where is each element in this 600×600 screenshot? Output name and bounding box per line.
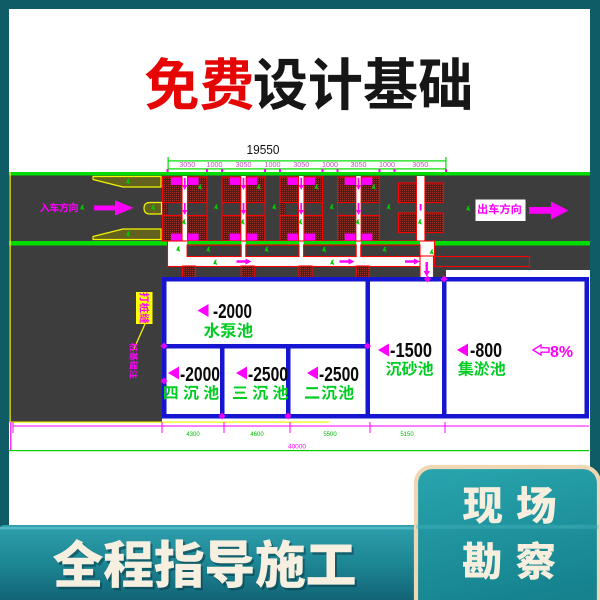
svg-text:40000: 40000 — [288, 444, 306, 451]
svg-text:4300: 4300 — [186, 432, 200, 438]
svg-text:-2500: -2500 — [319, 364, 359, 386]
svg-text:3050: 3050 — [179, 160, 195, 169]
svg-text:1000: 1000 — [322, 160, 338, 169]
svg-text:4600: 4600 — [250, 432, 264, 438]
svg-text:3050: 3050 — [412, 160, 428, 169]
svg-text:3050: 3050 — [293, 160, 309, 169]
svg-text:19550: 19550 — [247, 142, 280, 157]
svg-text:3050: 3050 — [236, 160, 252, 169]
svg-text:-2000: -2000 — [213, 301, 252, 323]
svg-text:1000: 1000 — [379, 160, 395, 169]
svg-text:-1500: -1500 — [390, 339, 432, 362]
svg-text:1000: 1000 — [265, 160, 281, 169]
svg-text:8%: 8% — [550, 344, 573, 361]
svg-text:-800: -800 — [470, 339, 502, 362]
svg-text:5500: 5500 — [323, 432, 337, 438]
svg-text:3050: 3050 — [351, 160, 367, 169]
svg-text:-2500: -2500 — [248, 364, 288, 386]
svg-text:5150: 5150 — [400, 432, 414, 438]
svg-text:1000: 1000 — [207, 160, 223, 169]
svg-text:-2000: -2000 — [180, 364, 220, 386]
